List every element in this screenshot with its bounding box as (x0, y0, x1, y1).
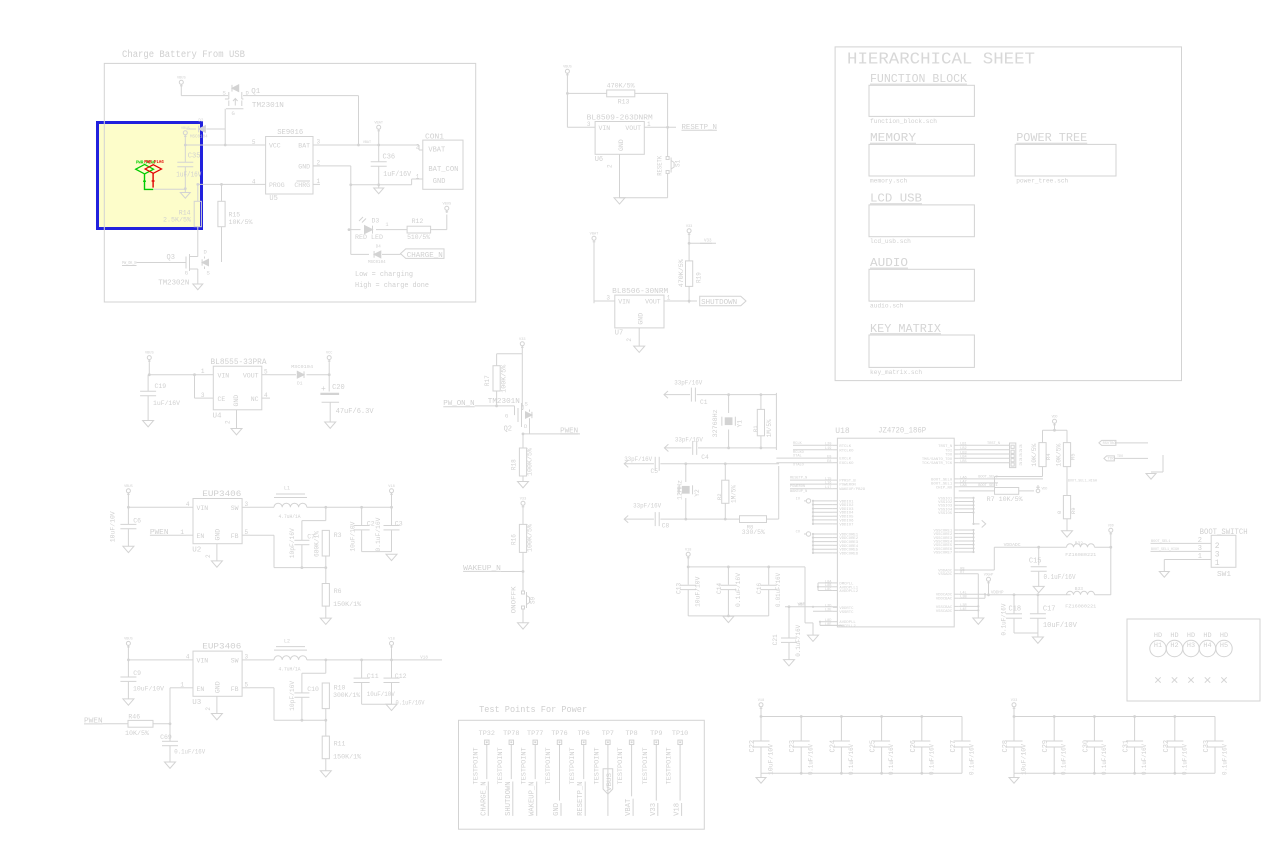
svg-text:Q2: Q2 (504, 426, 512, 434)
svg-text:100K/5%: 100K/5% (527, 524, 534, 552)
svg-text:VCC: VCC (269, 143, 281, 150)
svg-text:0.1uF/16V: 0.1uF/16V (396, 699, 425, 706)
svg-text:memory.sch: memory.sch (870, 178, 907, 185)
svg-text:WAKEUP/PB29: WAKEUP/PB29 (839, 487, 865, 492)
svg-text:RESETP_N: RESETP_N (577, 782, 585, 816)
svg-text:TM2301N: TM2301N (252, 102, 284, 110)
svg-text:2: 2 (607, 164, 614, 168)
svg-text:C5: C5 (651, 468, 659, 475)
svg-text:C28: C28 (1002, 740, 1010, 753)
svg-text:33pF/16V: 33pF/16V (674, 380, 702, 387)
svg-text:100K/5%: 100K/5% (500, 365, 507, 393)
svg-text:TCK/SANTR_TCK: TCK/SANTR_TCK (922, 461, 953, 466)
svg-text:510/5%: 510/5% (407, 234, 430, 241)
svg-text:TESTPOINT: TESTPOINT (642, 747, 649, 784)
svg-text:VBT: VBT (799, 603, 806, 607)
svg-text:TM2302N: TM2302N (158, 279, 189, 287)
svg-text:LB4: LB4 (960, 456, 966, 460)
svg-text:C12: C12 (395, 673, 407, 680)
svg-text:33333: 33333 (1020, 443, 1024, 466)
svg-text:TESTPOINT: TESTPOINT (521, 747, 528, 784)
svg-text:VBUS: VBUS (563, 65, 572, 69)
svg-text:3: 3 (245, 654, 249, 661)
svg-text:RCLK: RCLK (793, 442, 802, 446)
svg-text:32768Hz: 32768Hz (712, 409, 719, 437)
svg-text:TESTPOINT: TESTPOINT (569, 747, 576, 784)
svg-text:47uF/6.3V: 47uF/6.3V (336, 408, 375, 416)
svg-text:EN: EN (197, 686, 205, 693)
svg-text:C6: C6 (133, 517, 141, 524)
svg-text:VSSADC: VSSADC (938, 573, 953, 577)
svg-text:V33: V33 (1011, 699, 1017, 703)
svg-text:VOUT: VOUT (645, 299, 661, 306)
svg-text:V33: V33 (519, 338, 525, 342)
svg-text:C20: C20 (332, 384, 345, 392)
svg-text:TESTPOINT: TESTPOINT (617, 747, 624, 784)
svg-text:U18: U18 (835, 427, 850, 436)
svg-text:C13: C13 (676, 583, 683, 594)
svg-text:C1: C1 (700, 399, 708, 406)
svg-text:SHUTDOWN: SHUTDOWN (701, 299, 737, 307)
svg-text:0.1uF/16V: 0.1uF/16V (1001, 603, 1008, 635)
svg-text:L1: L1 (284, 486, 290, 492)
svg-text:0.1uF/16V: 0.1uF/16V (969, 744, 976, 775)
svg-text:G: G (185, 270, 188, 277)
svg-text:2: 2 (1198, 537, 1202, 545)
svg-text:C24: C24 (829, 740, 837, 753)
svg-text:1: 1 (386, 222, 389, 228)
svg-text:R13: R13 (618, 99, 630, 106)
svg-text:5: 5 (264, 368, 268, 375)
svg-text:1M/5%: 1M/5% (766, 419, 773, 437)
svg-text:V18: V18 (388, 485, 394, 489)
svg-text:RTCLKO: RTCLKO (839, 449, 854, 453)
svg-text:C19: C19 (155, 383, 167, 390)
svg-text:R5: R5 (1070, 453, 1077, 460)
svg-text:XTAL: XTAL (793, 455, 802, 459)
svg-text:C23: C23 (789, 740, 797, 753)
svg-text:1: 1 (317, 178, 321, 185)
svg-text:0.1uF/16V: 0.1uF/16V (1101, 744, 1108, 775)
svg-text:U5: U5 (269, 195, 277, 203)
svg-text:2: 2 (317, 159, 321, 166)
svg-text:FB: FB (231, 533, 239, 540)
svg-text:Y2: Y2 (694, 489, 701, 497)
svg-text:function_block.sch: function_block.sch (870, 118, 937, 125)
svg-text:10uF/10V: 10uF/10V (367, 691, 395, 698)
svg-text:S9: S9 (530, 596, 537, 604)
svg-text:LA8: LA8 (960, 484, 966, 488)
svg-text:SE9016: SE9016 (277, 129, 303, 137)
svg-text:GND: GND (215, 681, 222, 693)
svg-text:CHIP_NO: CHIP_NO (936, 486, 953, 490)
svg-text:VIN: VIN (197, 658, 209, 665)
svg-text:RESETK: RESETK (657, 156, 664, 176)
svg-text:U6: U6 (595, 156, 603, 164)
svg-text:V18: V18 (758, 699, 764, 703)
svg-text:D4: D4 (376, 245, 382, 249)
svg-text:C27: C27 (950, 740, 958, 753)
svg-text:MSC0104: MSC0104 (291, 364, 313, 370)
svg-text:TRST_N: TRST_N (987, 442, 1000, 446)
svg-text:HD: HD (1187, 632, 1195, 640)
svg-text:1uF/16V: 1uF/16V (176, 171, 202, 179)
svg-text:2: 2 (205, 554, 212, 558)
svg-text:C4: C4 (701, 454, 709, 461)
svg-text:VBAT: VBAT (363, 141, 371, 145)
svg-text:VIN: VIN (599, 125, 611, 132)
svg-text:10pF/16V: 10pF/16V (289, 528, 296, 558)
svg-text:TP7: TP7 (602, 730, 614, 738)
svg-text:IO: IO (796, 498, 800, 502)
svg-text:XTALO: XTALO (793, 464, 804, 468)
svg-text:VOUT: VOUT (243, 373, 259, 380)
svg-text:WAKEUP_N: WAKEUP_N (790, 490, 807, 494)
svg-text:VBUS: VBUS (181, 127, 190, 131)
svg-text:R19: R19 (696, 272, 703, 283)
svg-text:CE: CE (218, 396, 226, 403)
svg-text:High = charge done: High = charge done (355, 282, 429, 290)
svg-text:VDDIO7: VDDIO7 (839, 523, 854, 527)
svg-text:1: 1 (647, 121, 651, 128)
svg-text:VDDCBAC: VDDCBAC (936, 598, 953, 602)
svg-text:EXCLKO: EXCLKO (839, 462, 854, 466)
svg-text:0.1uF/16V: 0.1uF/16V (808, 744, 815, 775)
svg-text:C3: C3 (395, 521, 403, 528)
svg-text:V33: V33 (650, 803, 658, 816)
svg-text:TP77: TP77 (527, 730, 543, 738)
svg-text:R16: R16 (511, 534, 518, 545)
svg-text:TP10: TP10 (672, 730, 688, 738)
svg-text:R15: R15 (229, 212, 241, 219)
svg-text:L17: L17 (825, 486, 831, 490)
svg-text:C2: C2 (367, 521, 375, 528)
svg-text:VCC: VCC (326, 352, 332, 356)
svg-text:2: 2 (626, 338, 633, 342)
svg-text:3: 3 (606, 295, 610, 302)
svg-text:10K/5%: 10K/5% (1031, 443, 1038, 466)
svg-text:HD: HD (1154, 632, 1162, 640)
svg-text:V18: V18 (674, 803, 682, 816)
svg-text:VBUS: VBUS (145, 352, 154, 356)
svg-text:R11: R11 (334, 740, 346, 747)
svg-text:C36: C36 (383, 154, 396, 162)
svg-text:C33: C33 (1203, 740, 1211, 753)
svg-text:CHARGE_N: CHARGE_N (407, 252, 443, 260)
svg-text:H4: H4 (1203, 642, 1211, 650)
svg-text:RED LED: RED LED (355, 234, 383, 241)
svg-text:3: 3 (587, 121, 591, 128)
svg-text:BL8555-33PRA: BL8555-33PRA (211, 357, 268, 367)
svg-text:TP76: TP76 (551, 730, 567, 738)
svg-text:SW1: SW1 (1217, 571, 1232, 579)
svg-text:1: 1 (1198, 553, 1202, 561)
svg-text:Test Points For Power: Test Points For Power (479, 705, 587, 715)
svg-text:+: + (321, 385, 326, 394)
svg-text:4.7uH/1A: 4.7uH/1A (279, 667, 301, 673)
svg-text:D1: D1 (297, 381, 303, 387)
svg-text:C15: C15 (1029, 558, 1042, 566)
svg-text:2: 2 (416, 143, 420, 150)
svg-text:C18: C18 (1009, 606, 1022, 614)
svg-text:VBAT: VBAT (625, 799, 633, 816)
svg-text:R7: R7 (960, 571, 964, 575)
svg-text:R10: R10 (334, 685, 346, 692)
svg-text:CO: CO (796, 531, 800, 535)
svg-text:0.1uF/16V: 0.1uF/16V (1044, 574, 1077, 582)
svg-text:D: D (204, 249, 208, 256)
svg-text:3: 3 (1198, 545, 1202, 553)
svg-text:1: 1 (1215, 559, 1220, 568)
svg-text:V33: V33 (686, 225, 692, 229)
svg-text:EN: EN (197, 533, 205, 540)
svg-text:HD: HD (1220, 632, 1228, 640)
svg-text:GND: GND (553, 803, 561, 816)
svg-text:PROG: PROG (269, 182, 285, 189)
svg-text:V18: V18 (388, 637, 394, 641)
svg-text:C35: C35 (188, 153, 201, 161)
svg-text:C11: C11 (367, 673, 379, 680)
svg-text:VBAT: VBAT (374, 121, 383, 125)
svg-text:R1: R1 (752, 425, 759, 432)
svg-text:TESTPOINT: TESTPOINT (545, 747, 552, 784)
svg-text:C14: C14 (716, 583, 723, 594)
svg-text:VSSCORE7: VSSCORE7 (934, 552, 953, 556)
svg-text:ONOFFK: ONOFFK (511, 586, 518, 613)
svg-text:BOOT_SEL1: BOOT_SEL1 (1151, 540, 1171, 544)
svg-text:U4: U4 (213, 412, 223, 420)
svg-text:GND: GND (215, 529, 222, 541)
svg-text:VOUT: VOUT (625, 125, 641, 132)
svg-text:HIERARCHICAL SHEET: HIERARCHICAL SHEET (847, 51, 1035, 70)
svg-text:BOOT_SEL1_HIGH: BOOT_SEL1_HIGH (1068, 480, 1098, 484)
svg-text:FB: FB (231, 686, 239, 693)
svg-text:D: D (524, 423, 528, 430)
svg-text:R17: R17 (484, 375, 491, 386)
svg-text:RSVTBO: RSVTBO (1103, 442, 1116, 446)
svg-text:100K/5%: 100K/5% (527, 448, 534, 476)
svg-text:key_matrix.sch: key_matrix.sch (870, 369, 922, 376)
svg-text:U2: U2 (192, 547, 201, 555)
svg-text:VBUS: VBUS (606, 773, 613, 791)
svg-text:VBAT: VBAT (590, 232, 599, 236)
svg-text:HD: HD (1170, 632, 1178, 640)
svg-text:C22: C22 (749, 740, 757, 753)
svg-text:VIN: VIN (197, 505, 209, 512)
svg-text:H1: H1 (1154, 642, 1162, 650)
svg-text:G: G (505, 413, 508, 420)
svg-text:POWERON: POWERON (839, 484, 856, 488)
svg-text:330/5%: 330/5% (742, 529, 765, 536)
svg-text:FZ16080221: FZ16080221 (1065, 552, 1096, 558)
svg-text:150K/1%: 150K/1% (333, 754, 361, 761)
svg-text:10uF/10V: 10uF/10V (110, 511, 117, 542)
svg-text:C8: C8 (662, 522, 670, 529)
svg-text:1M/5%: 1M/5% (731, 485, 738, 503)
svg-text:C17: C17 (1043, 606, 1056, 614)
svg-text:VIN: VIN (218, 373, 230, 380)
svg-text:GND: GND (233, 395, 240, 407)
svg-text:power_tree.sch: power_tree.sch (1016, 178, 1068, 185)
svg-text:3: 3 (245, 501, 249, 508)
svg-text:0.1uF/16V: 0.1uF/16V (375, 517, 382, 551)
svg-text:R9: R9 (1070, 507, 1077, 514)
svg-text:TESTPOINT: TESTPOINT (497, 747, 504, 784)
svg-text:V33: V33 (520, 497, 526, 501)
svg-text:4: 4 (186, 501, 190, 508)
svg-text:0.1uF/16V: 0.1uF/16V (888, 744, 895, 775)
svg-text:10uF/10V: 10uF/10V (133, 686, 164, 693)
svg-text:1uF/16V: 1uF/16V (383, 171, 412, 179)
svg-text:EUP3406: EUP3406 (202, 641, 241, 651)
svg-text:0.1uF/16V: 0.1uF/16V (1181, 744, 1188, 775)
svg-text:470K/5%: 470K/5% (678, 259, 685, 287)
svg-text:0.1uF/16V: 0.1uF/16V (928, 744, 935, 775)
svg-text:TESTPOINT: TESTPOINT (593, 747, 600, 784)
svg-text:Charge Battery From USB: Charge Battery From USB (122, 49, 245, 61)
svg-text:E8: E8 (827, 460, 831, 464)
svg-text:L19: L19 (825, 447, 831, 451)
svg-text:H2: H2 (1170, 642, 1178, 650)
svg-text:10uF/10V: 10uF/10V (1043, 622, 1078, 630)
svg-text:Q3: Q3 (167, 254, 175, 262)
svg-text:VSSCADC: VSSCADC (936, 610, 953, 614)
svg-text:S: S (207, 270, 211, 277)
svg-text:L8E: L8E (825, 623, 831, 627)
svg-text:0.1uF/16V: 0.1uF/16V (735, 573, 742, 607)
svg-text:VDD: VDD (1052, 414, 1058, 418)
svg-text:VBUS: VBUS (124, 637, 133, 641)
svg-text:TESTPOINT: TESTPOINT (472, 747, 479, 784)
svg-text:2: 2 (205, 707, 212, 711)
svg-text:U3: U3 (192, 699, 202, 707)
svg-text:TMS/SANTO_TDO: TMS/SANTO_TDO (922, 457, 953, 462)
svg-text:C69: C69 (160, 734, 172, 741)
svg-text:CHARGE_N: CHARGE_N (480, 782, 488, 816)
svg-text:10K/5%: 10K/5% (125, 730, 149, 737)
svg-text:0.1uF/16V: 0.1uF/16V (795, 625, 802, 657)
svg-text:300K/1%: 300K/1% (333, 692, 360, 699)
svg-text:PWR_FLAG: PWR_FLAG (144, 159, 164, 165)
svg-text:L2E: L2E (825, 609, 831, 613)
svg-text:H3: H3 (1187, 642, 1195, 650)
svg-text:4.7uH/1A: 4.7uH/1A (279, 514, 301, 520)
svg-text:VDD: VDD (1042, 487, 1048, 491)
svg-text:10K/5%: 10K/5% (229, 219, 253, 226)
svg-text:4: 4 (186, 654, 190, 661)
svg-text:LB1: LB1 (960, 443, 966, 447)
svg-text:RTCLK: RTCLK (839, 445, 851, 449)
svg-text:150K/1%: 150K/1% (333, 601, 361, 608)
svg-text:1: 1 (667, 295, 671, 302)
svg-text:0: 0 (1056, 511, 1063, 514)
svg-text:C25: C25 (870, 740, 878, 753)
svg-text:lcd_usb.sch: lcd_usb.sch (870, 238, 911, 245)
svg-text:3: 3 (317, 139, 321, 146)
svg-text:V18: V18 (685, 548, 691, 552)
svg-text:R12: R12 (412, 218, 424, 225)
svg-text:TP8: TP8 (625, 730, 637, 738)
svg-text:0.1uF/16V: 0.1uF/16V (1141, 744, 1148, 775)
svg-text:TM2301N: TM2301N (488, 398, 520, 406)
svg-text:VSSRTC: VSSRTC (839, 611, 854, 615)
svg-text:680K/1%: 680K/1% (314, 531, 321, 557)
svg-text:EUP3406: EUP3406 (202, 489, 241, 499)
svg-text:C26: C26 (910, 740, 918, 753)
svg-text:10uF/10V: 10uF/10V (768, 744, 775, 775)
svg-text:R3: R3 (334, 532, 342, 539)
svg-text:C10: C10 (307, 686, 319, 693)
svg-text:C21: C21 (772, 634, 779, 645)
svg-text:VBUS: VBUS (177, 76, 186, 80)
svg-text:SHUTDOWN: SHUTDOWN (505, 782, 513, 816)
svg-text:WAKEUP_N: WAKEUP_N (529, 782, 537, 816)
svg-text:AVDDPLL2: AVDDPLL2 (839, 590, 858, 594)
svg-text:5: 5 (252, 139, 256, 146)
svg-text:EXCLK: EXCLK (839, 458, 851, 462)
svg-text:Y1: Y1 (737, 420, 744, 428)
svg-text:TDO: TDO (1108, 457, 1115, 461)
svg-text:S: S (525, 401, 529, 408)
svg-text:L20: L20 (825, 443, 831, 447)
svg-text:33pF/16V: 33pF/16V (675, 436, 703, 443)
svg-text:10uF/10V: 10uF/10V (1021, 744, 1028, 775)
svg-text:VDGHP: VDGHP (984, 572, 994, 576)
svg-text:VBAT: VBAT (428, 146, 445, 154)
svg-text:Low = charging: Low = charging (355, 271, 413, 279)
svg-text:HD: HD (1203, 632, 1211, 640)
svg-text:JZ4720_186P: JZ4720_186P (878, 426, 926, 435)
svg-text:L8C: L8C (825, 588, 831, 592)
svg-text:10uF/10V: 10uF/10V (350, 521, 357, 551)
svg-text:BAT_CON: BAT_CON (428, 166, 458, 174)
svg-text:E9: E9 (827, 456, 831, 460)
svg-text:R6: R6 (334, 588, 342, 595)
svg-text:TP32: TP32 (479, 730, 495, 738)
svg-text:C30: C30 (1082, 740, 1090, 753)
svg-text:3: 3 (201, 392, 205, 399)
svg-text:1uF/16V: 1uF/16V (153, 400, 180, 407)
svg-text:C16: C16 (756, 583, 763, 594)
svg-text:0.1uF/16V: 0.1uF/16V (174, 749, 205, 756)
svg-text:GND: GND (298, 163, 310, 170)
svg-text:H5: H5 (1220, 642, 1228, 650)
svg-text:VDDCORE6: VDDCORE6 (839, 552, 858, 556)
svg-text:V18: V18 (420, 657, 428, 661)
svg-text:TESTPOINT: TESTPOINT (666, 747, 673, 784)
svg-text:TP9: TP9 (650, 730, 662, 738)
svg-text:C31: C31 (1123, 740, 1131, 753)
svg-text:0.1uF/16V: 0.1uF/16V (848, 744, 855, 775)
svg-text:4: 4 (264, 392, 268, 399)
svg-text:R2: R2 (716, 493, 723, 500)
svg-text:C32: C32 (1163, 740, 1171, 753)
svg-text:VDD: VDD (1108, 523, 1114, 527)
svg-text:10K/5%: 10K/5% (1056, 443, 1063, 466)
svg-text:S1: S1 (675, 159, 682, 167)
svg-text:1: 1 (201, 368, 205, 375)
svg-text:NC: NC (251, 396, 259, 403)
svg-text:D2: D2 (198, 120, 204, 124)
svg-text:CHRG: CHRG (294, 182, 310, 189)
svg-text:TRST_N: TRST_N (938, 445, 953, 449)
svg-text:VBUS: VBUS (124, 485, 133, 489)
svg-text:10pF/16V: 10pF/16V (289, 681, 296, 711)
svg-text:BAT: BAT (298, 143, 310, 150)
svg-text:SW: SW (231, 658, 239, 665)
svg-text:R14: R14 (179, 210, 191, 217)
svg-text:5: 5 (245, 681, 249, 688)
